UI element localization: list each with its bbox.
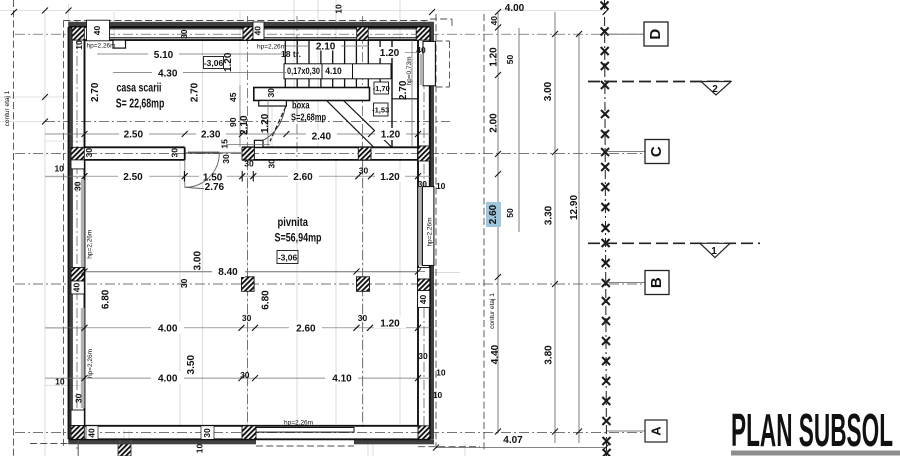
svg-text:40: 40 [253,26,263,36]
svg-text:S= 22,68mp: S= 22,68mp [116,97,165,111]
svg-text:18 tr.: 18 tr. [281,49,301,59]
svg-text:3.00: 3.00 [193,251,204,271]
svg-text:40: 40 [71,283,81,293]
svg-text:B: B [648,277,665,288]
svg-text:10: 10 [436,367,446,377]
svg-text:10: 10 [55,377,65,387]
svg-text:-1,53: -1,53 [372,106,389,115]
svg-text:D: D [647,29,664,40]
svg-text:2.10: 2.10 [316,42,336,53]
svg-text:40: 40 [416,45,426,55]
svg-text:40: 40 [86,428,96,438]
svg-text:4.30: 4.30 [158,68,178,79]
svg-text:hp=0,73m: hp=0,73m [406,56,413,85]
svg-text:hp=2,26m: hp=2,26m [426,217,433,246]
svg-text:12.90: 12.90 [569,195,580,220]
svg-text:30: 30 [202,428,212,438]
svg-text:pivnita: pivnita [278,215,309,229]
svg-text:30: 30 [266,88,276,98]
svg-text:40: 40 [489,16,499,26]
svg-text:30: 30 [240,370,250,380]
svg-text:30: 30 [73,393,83,403]
svg-text:-3,06: -3,06 [278,253,298,263]
svg-text:A: A [648,426,663,436]
svg-text:2.70: 2.70 [90,82,101,102]
svg-text:boxa: boxa [292,100,310,112]
svg-text:contur etaj 1: contur etaj 1 [4,90,11,126]
svg-text:2: 2 [712,84,718,95]
svg-text:5.10: 5.10 [154,50,174,61]
svg-text:hp=2,26m: hp=2,26m [284,420,313,427]
svg-text:30: 30 [73,181,83,191]
svg-text:30: 30 [358,313,368,323]
svg-text:30: 30 [267,159,277,169]
svg-text:10: 10 [333,4,343,14]
svg-text:50: 50 [505,55,515,65]
svg-text:4.00: 4.00 [158,374,178,385]
svg-text:6.80: 6.80 [261,290,272,310]
svg-text:4.10: 4.10 [325,66,342,76]
svg-text:30: 30 [418,179,428,189]
svg-text:3.30: 3.30 [544,205,555,225]
svg-text:45: 45 [228,92,238,102]
svg-text:2.50: 2.50 [124,130,144,141]
svg-text:30: 30 [170,148,180,158]
svg-text:3.80: 3.80 [544,345,555,365]
svg-text:2.50: 2.50 [123,172,143,183]
svg-text:-3,06: -3,06 [204,58,224,68]
svg-text:4.07: 4.07 [503,435,523,446]
svg-text:C: C [648,146,665,157]
svg-text:-1,70: -1,70 [373,84,390,93]
svg-text:2.60: 2.60 [296,323,316,334]
svg-text:2.70: 2.70 [190,82,201,102]
svg-text:30: 30 [179,29,189,39]
svg-text:S=56,94mp: S=56,94mp [275,231,322,245]
svg-text:4.00: 4.00 [158,323,178,334]
svg-text:1.20: 1.20 [260,113,271,133]
svg-text:6.80: 6.80 [100,289,111,309]
svg-text:4.10: 4.10 [332,374,352,385]
svg-text:8.40: 8.40 [218,267,238,278]
svg-text:10: 10 [74,40,84,50]
svg-text:1.20: 1.20 [380,48,400,59]
svg-text:40: 40 [418,295,428,305]
svg-text:30: 30 [418,351,428,361]
svg-text:1: 1 [711,246,717,257]
svg-text:30: 30 [84,148,94,158]
svg-text:hp=2,26m: hp=2,26m [257,44,286,51]
svg-text:1.20: 1.20 [380,318,400,329]
svg-text:4.00: 4.00 [505,3,525,14]
svg-text:10: 10 [54,164,64,174]
svg-text:1.20: 1.20 [489,47,500,67]
svg-text:contur etaj 1: contur etaj 1 [489,293,496,329]
svg-text:4.40: 4.40 [490,344,501,364]
svg-text:S=2,68mp: S=2,68mp [291,112,326,124]
svg-text:30: 30 [242,313,252,323]
svg-text:40: 40 [92,26,102,36]
svg-text:hp=2,26m: hp=2,26m [87,43,116,50]
svg-text:10: 10 [194,444,204,454]
svg-text:90: 90 [228,117,238,127]
svg-text:casa scarii: casa scarii [117,81,162,95]
svg-text:3.00: 3.00 [543,81,554,101]
svg-text:3.50: 3.50 [186,355,197,375]
svg-text:1.20: 1.20 [380,172,400,183]
svg-text:2.76: 2.76 [205,182,225,193]
svg-text:30: 30 [221,154,231,164]
svg-text:2.30: 2.30 [201,130,221,141]
svg-text:10: 10 [433,390,443,400]
svg-text:10: 10 [436,181,446,191]
svg-text:2.00: 2.00 [489,113,500,133]
svg-text:hp=2,26m: hp=2,26m [87,349,94,378]
svg-text:50: 50 [505,208,515,218]
svg-text:1.20: 1.20 [223,52,234,72]
svg-text:hp=2,26m: hp=2,26m [87,230,94,259]
svg-text:2.60: 2.60 [293,172,313,183]
svg-text:1.20: 1.20 [381,130,401,141]
svg-text:PLAN SUBSOL: PLAN SUBSOL [731,404,893,456]
svg-text:2.10: 2.10 [239,115,250,135]
svg-text:30: 30 [179,278,189,288]
svg-text:2.40: 2.40 [312,132,332,143]
svg-text:30: 30 [244,159,254,169]
svg-text:2.60: 2.60 [488,204,499,224]
svg-text:15: 15 [220,139,230,149]
svg-text:30: 30 [359,165,369,175]
svg-text:0,17x0,30: 0,17x0,30 [287,66,320,76]
